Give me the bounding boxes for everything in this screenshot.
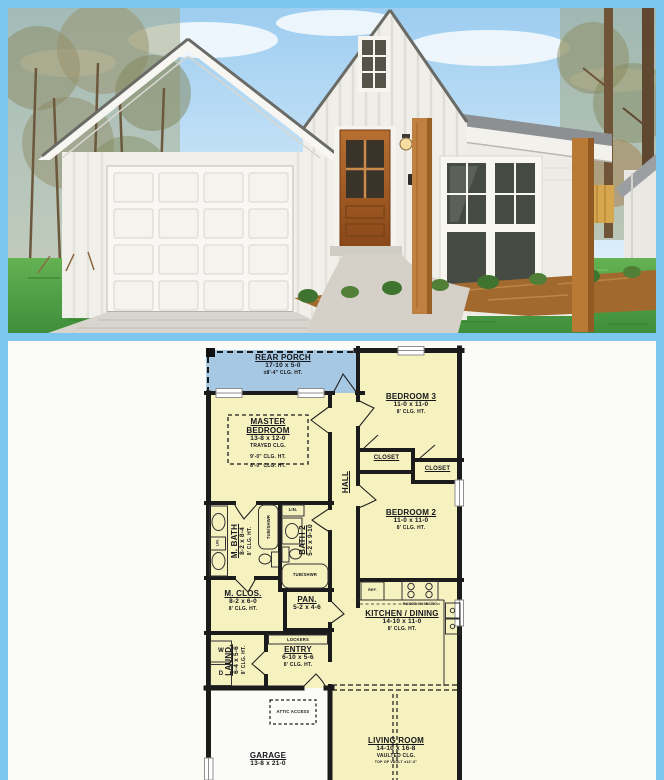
label-linen-master: LIN.: [215, 535, 222, 551]
front-door: [334, 126, 396, 252]
label-linen-bath2: LIN.: [282, 507, 304, 512]
label-bedroom2: BEDROOM 2 11-0 x 11-0 8' CLG. HT.: [361, 508, 461, 532]
label-lockers: LOCKERS: [269, 637, 327, 642]
attic-window: [358, 36, 390, 92]
label-dryer: D: [211, 671, 231, 678]
label-bath2: BATH 2 5-2 x 9-10: [297, 515, 315, 565]
label-washer: W: [211, 648, 231, 655]
floor-plan-drawing: REAR PORCH 17-10 x 5-0 ±8'-4" CLG. HT. B…: [206, 348, 462, 780]
label-attic-access: ATTIC ACCESS: [270, 709, 316, 714]
label-rear-porch: REAR PORCH 17-10 x 5-0 ±8'-4" CLG. HT.: [225, 353, 341, 377]
label-laundry: LAUND. 6-4 x 5-6 8' CLG. HT.: [223, 633, 249, 687]
label-tub-shower-master: TUB/SHWR: [264, 507, 272, 547]
label-closet-left: CLOSET: [360, 455, 413, 462]
label-master-bath: M. BATH 8-2 x 8-4 8' CLG. HT.: [229, 511, 255, 571]
label-bedroom3: BEDROOM 3 11-0 x 11-0 8' CLG. HT.: [361, 392, 461, 416]
label-entry: ENTRY 6-10 x 5-6 8' CLG. HT.: [268, 645, 328, 669]
label-master-bedroom: MASTER BEDROOM 13-8 x 12-0 TRAYED CLG. 9…: [218, 417, 318, 470]
label-hall: HALL: [339, 462, 351, 502]
label-closet-right: CLOSET: [413, 466, 462, 473]
label-living-room: LIVING ROOM 14-10 x 16-8 VAULTED CLG. TO…: [336, 736, 456, 764]
label-range: RANGE W/ MICRO: [392, 602, 448, 606]
label-garage: GARAGE 13-8 x 21-0: [218, 751, 318, 768]
house-photo: [8, 8, 656, 333]
pin-composite: REAR PORCH 17-10 x 5-0 ±8'-4" CLG. HT. B…: [0, 0, 664, 780]
label-kitchen-dining: KITCHEN / DINING 14-10 x 11-0 8' CLG. HT…: [334, 609, 470, 633]
label-refrigerator: REF.: [361, 588, 384, 592]
label-pantry: PAN. 5-2 x 4-6: [286, 595, 328, 612]
label-tub-shower-bath2: TUB/SHWR: [283, 572, 327, 577]
label-master-closet: M. CLOS. 8-2 x 6-0 8' CLG. HT.: [213, 589, 273, 613]
garage-door: [107, 166, 293, 314]
